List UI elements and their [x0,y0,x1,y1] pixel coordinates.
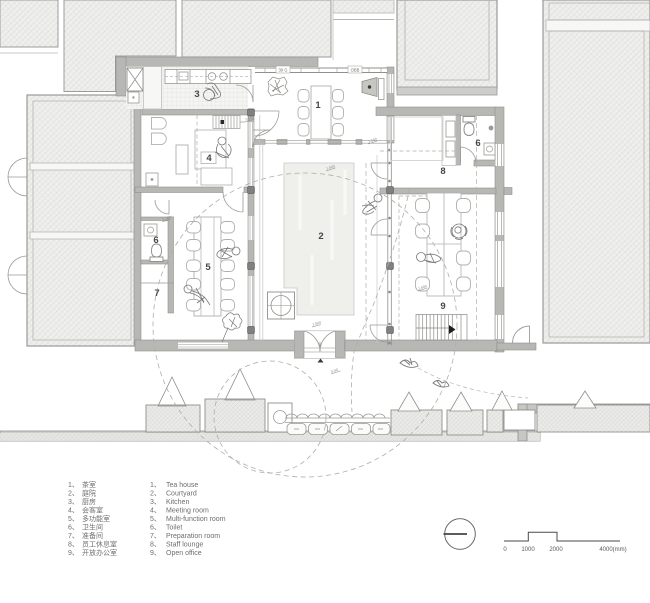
svg-text:4、: 4、 [150,508,161,515]
svg-text:3、: 3、 [150,499,161,506]
svg-text:6、: 6、 [150,525,161,532]
svg-text:Meeting room: Meeting room [166,508,209,515]
svg-text:5、: 5、 [150,516,161,523]
svg-text:7、: 7、 [150,533,161,540]
svg-text:Toilet: Toilet [166,525,182,532]
svg-text:3: 3 [194,89,199,100]
svg-text:1000: 1000 [521,547,535,553]
svg-text:Multi-function room: Multi-function room [166,516,226,523]
svg-text:卫生间: 卫生间 [82,523,103,532]
svg-text:6: 6 [475,138,480,149]
svg-text:OBB: OBB [351,67,360,72]
svg-text:4: 4 [206,153,212,164]
svg-text:9、: 9、 [150,550,161,557]
svg-text:5、: 5、 [68,516,79,523]
svg-text:8: 8 [440,166,445,177]
svg-text:2、: 2、 [150,491,161,498]
svg-text:庭院: 庭院 [82,489,96,498]
svg-text:1、: 1、 [150,482,161,489]
svg-text:8、: 8、 [68,542,79,549]
svg-text:厨房: 厨房 [82,497,96,506]
svg-text:7、: 7、 [68,533,79,540]
svg-text:会客室: 会客室 [82,506,103,515]
svg-text:2: 2 [318,231,323,242]
svg-text:员工休息室: 员工休息室 [82,540,117,549]
svg-text:Staff lounge: Staff lounge [166,542,203,549]
svg-text:Courtyard: Courtyard [166,491,197,498]
svg-text:准备间: 准备间 [82,531,103,540]
svg-text:Tea house: Tea house [166,482,198,489]
svg-text:6、: 6、 [68,525,79,532]
svg-text:8、: 8、 [150,542,161,549]
svg-text:9: 9 [440,301,445,312]
svg-text:2000: 2000 [549,547,563,553]
svg-text:多功能室: 多功能室 [82,514,110,523]
svg-text:7: 7 [154,288,159,299]
svg-text:Open office: Open office [166,550,202,557]
svg-text:3、: 3、 [68,499,79,506]
svg-text:4000(mm): 4000(mm) [599,547,626,553]
svg-text:2、: 2、 [68,491,79,498]
svg-text:茶室: 茶室 [82,480,96,489]
svg-text:4、: 4、 [68,508,79,515]
svg-text:1、: 1、 [68,482,79,489]
svg-text:6: 6 [153,235,158,246]
svg-text:Kitchen: Kitchen [166,499,189,506]
svg-text:9、: 9、 [68,550,79,557]
svg-text:1: 1 [315,100,321,111]
svg-text:30 G: 30 G [278,67,287,72]
svg-text:5: 5 [205,262,211,273]
svg-text:Preparation room: Preparation room [166,533,220,540]
svg-text:开放办公室: 开放办公室 [82,548,117,557]
